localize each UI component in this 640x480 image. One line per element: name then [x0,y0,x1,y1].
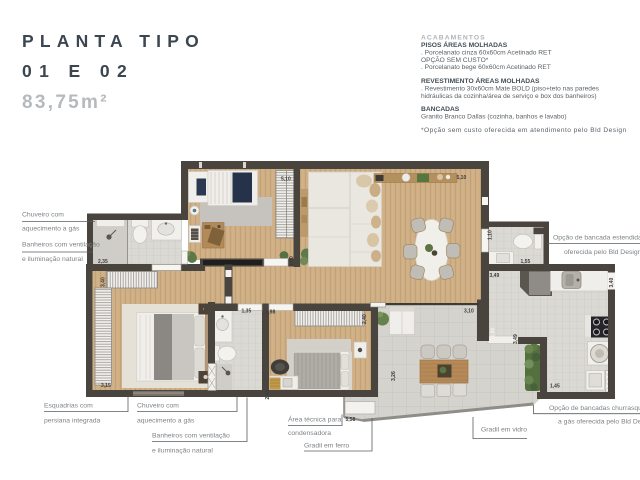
svg-text:e iluminação natural: e iluminação natural [152,448,213,455]
svg-text:PLANTA TIPO: PLANTA TIPO [22,31,205,51]
svg-text:a gás oferecida pelo Bld Desig: a gás oferecida pelo Bld Design [558,419,640,426]
svg-text:ACABAMENTOS: ACABAMENTOS [421,35,486,42]
svg-text:aquecimento a gás: aquecimento a gás [22,226,80,233]
svg-text:BANCADAS: BANCADAS [421,106,460,113]
svg-text:3,40: 3,40 [101,277,107,287]
svg-text:Esquadrias com: Esquadrias com [44,403,93,410]
svg-text:Chuveiro com: Chuveiro com [22,212,64,219]
svg-text:5,58: 5,58 [346,417,356,423]
svg-text:Opção de bancada estendida: Opção de bancada estendida [553,235,640,242]
svg-text:3,10: 3,10 [464,309,474,315]
svg-text:83,75m²: 83,75m² [22,92,109,113]
svg-text:condensadora: condensadora [288,430,331,437]
svg-text:Gradil em ferro: Gradil em ferro [304,443,350,450]
svg-text:1,10: 1,10 [488,230,494,240]
svg-text:3,26: 3,26 [391,371,397,381]
svg-text:5,10: 5,10 [281,177,291,183]
svg-text:Gradil em vidro: Gradil em vidro [481,427,527,434]
svg-text:Granito Branco Dallas (cozinha: Granito Branco Dallas (cozinha, banhos e… [421,113,567,120]
svg-text:1,90: 1,90 [491,328,497,338]
svg-text:3,49: 3,49 [513,334,519,344]
svg-text:aquecimento a gás: aquecimento a gás [137,418,195,425]
svg-text:2,35: 2,35 [98,259,108,265]
svg-text:hidráulicas da cozinha/área de: hidráulicas da cozinha/área de serviço e… [421,93,597,100]
svg-text:REVESTIMENTO ÁREAS MOLHADAS: REVESTIMENTO ÁREAS MOLHADAS [421,76,540,85]
svg-text:OPÇÃO SEM CUSTO*: OPÇÃO SEM CUSTO* [421,55,489,64]
svg-text:Banheiros com ventilação: Banheiros com ventilação [22,242,100,249]
svg-text:2,40: 2,40 [362,314,368,324]
svg-text:5,10: 5,10 [457,175,467,181]
svg-text:1,45: 1,45 [550,384,560,390]
svg-text:2,98: 2,98 [266,310,276,316]
svg-text:PISOS ÁREAS MOLHADAS: PISOS ÁREAS MOLHADAS [421,40,508,49]
svg-text:. Porcelanato bege 60x60cm Ace: . Porcelanato bege 60x60cm Acetinado RET [421,64,551,71]
svg-text:. Porcelanato cinza 60x60cm Ac: . Porcelanato cinza 60x60cm Acetinado RE… [421,49,551,56]
svg-text:e iluminação natural: e iluminação natural [22,256,83,263]
svg-text:. Revestimento 30x60cm Mate BO: . Revestimento 30x60cm Mate BOLD (piso+t… [421,85,600,92]
svg-text:3,15: 3,15 [101,383,111,389]
svg-text:Opção de bancadas churrasqueir: Opção de bancadas churrasqueira [549,405,640,412]
svg-text:Banheiros com ventilação: Banheiros com ventilação [152,433,230,440]
svg-text:1,35: 1,35 [242,309,252,315]
svg-text:3,40: 3,40 [609,278,615,288]
svg-text:2,40: 2,40 [265,390,271,400]
svg-text:Chuveiro com: Chuveiro com [137,403,179,410]
svg-text:*Opção sem custo oferecida em: *Opção sem custo oferecida em atendiment… [421,127,627,134]
svg-text:persiana integrada: persiana integrada [44,418,101,425]
svg-text:oferecida pelo Bld Design: oferecida pelo Bld Design [564,249,640,256]
svg-text:2,90: 2,90 [289,256,295,266]
svg-text:3,49: 3,49 [490,273,500,279]
svg-text:01 E 02: 01 E 02 [22,61,134,81]
svg-text:1,55: 1,55 [521,259,531,265]
svg-text:Área técnica para: Área técnica para [288,415,341,424]
